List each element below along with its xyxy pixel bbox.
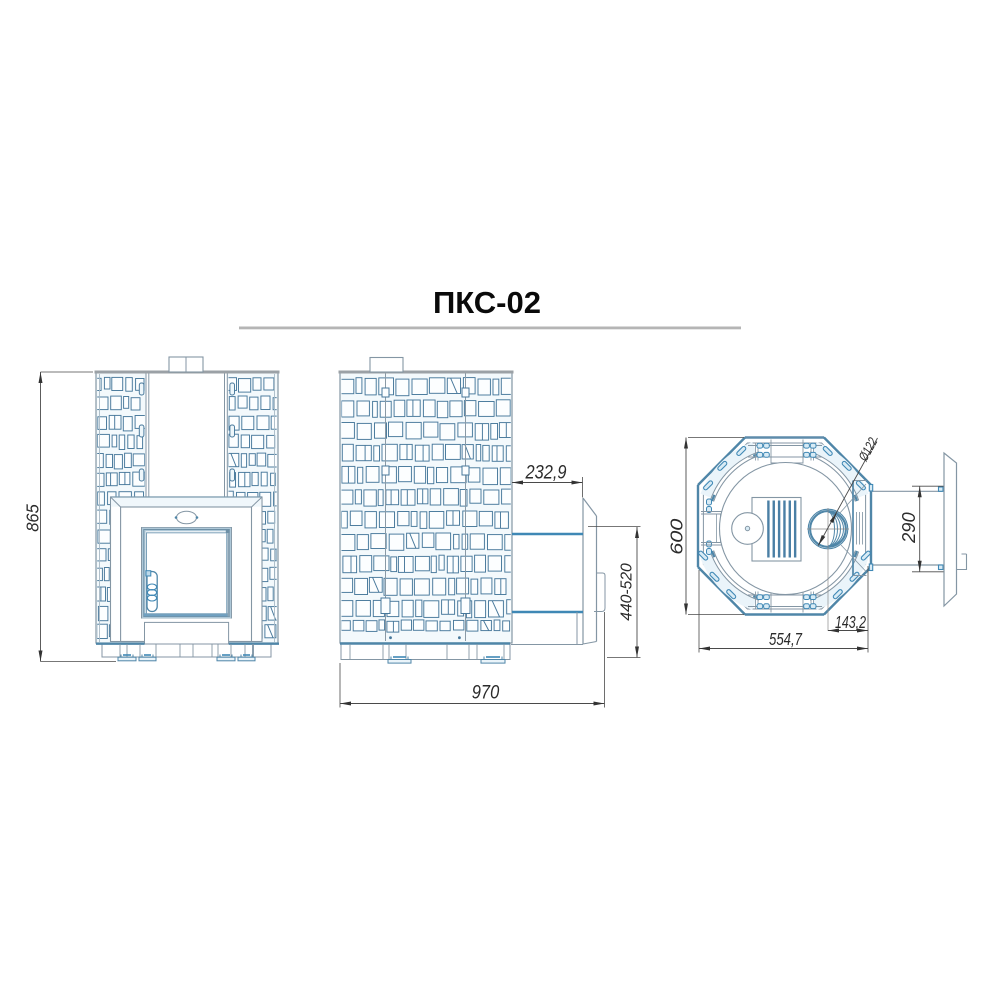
svg-text:440-520: 440-520 bbox=[619, 563, 636, 621]
svg-text:865: 865 bbox=[23, 504, 43, 532]
svg-text:290: 290 bbox=[899, 512, 919, 544]
svg-text:600: 600 bbox=[667, 518, 687, 554]
svg-text:554,7: 554,7 bbox=[769, 629, 803, 649]
svg-text:ПКС-02: ПКС-02 bbox=[433, 285, 541, 320]
svg-text:232,9: 232,9 bbox=[525, 462, 567, 484]
svg-text:970: 970 bbox=[472, 683, 500, 704]
svg-text:143,2: 143,2 bbox=[835, 612, 866, 632]
